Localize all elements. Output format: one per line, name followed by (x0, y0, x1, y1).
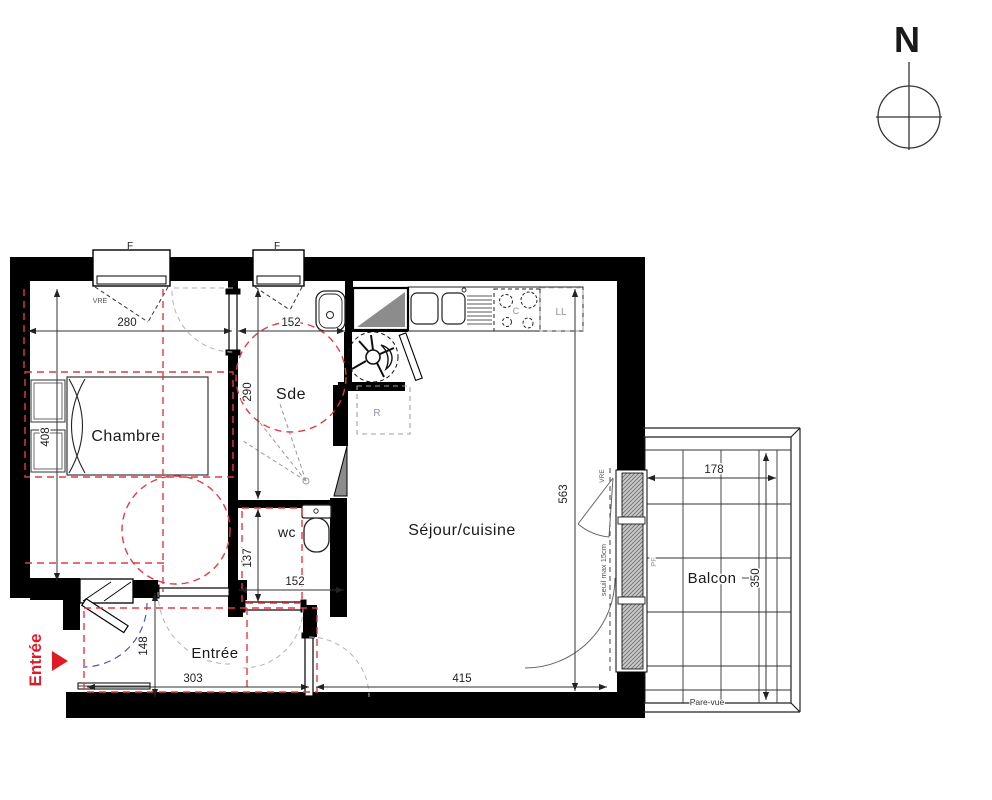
compass-north-label: N (894, 19, 920, 60)
north-compass (876, 62, 942, 150)
dim-wc-depth: 137 (242, 548, 254, 567)
washer-label: LL (555, 307, 567, 318)
bed (67, 377, 208, 475)
vre-top-label: VRE (93, 298, 108, 305)
balcony-french-window (610, 468, 647, 672)
dim-sejour-depth: 563 (558, 484, 570, 503)
entry-arrow-icon (52, 651, 68, 671)
room-label-entree: Entrée (191, 645, 238, 662)
drainer-lines (467, 296, 492, 324)
entry-marker (52, 651, 68, 671)
fridge-space (357, 386, 410, 434)
dim-sde-width: 152 (281, 317, 300, 329)
room-label-wc: wc (277, 524, 296, 540)
washbasin (316, 291, 345, 331)
duct-shaft (353, 288, 408, 330)
fridge-label: R (373, 408, 380, 419)
vre-window-label: VRE (599, 469, 606, 483)
nightstands (31, 380, 65, 472)
turning-circle-chambre (122, 476, 230, 584)
kitchen-sink-bowl-1 (411, 293, 438, 324)
cooktop-label: C (513, 306, 520, 316)
water-heater (348, 332, 398, 382)
turning-circle-sde (236, 322, 346, 432)
window2-label: F (274, 241, 280, 252)
bed-clearance (25, 372, 233, 477)
shower-drain-lines (243, 404, 309, 484)
faucet-icon (462, 288, 466, 292)
toilet (302, 505, 331, 552)
dim-wc-width: 152 (285, 576, 304, 588)
room-label-sejour: Séjour/cuisine (408, 522, 516, 539)
dim-entree-width: 303 (183, 673, 202, 685)
window-f2 (253, 250, 304, 310)
door-swings (83, 288, 369, 697)
floor-plan-drawing: N Entrée Chambre Sde wc Séjour/cuisine E… (0, 0, 992, 800)
dim-entree-depth: 148 (138, 636, 150, 655)
accessibility-overlays (24, 289, 346, 692)
kitchen-sink-bowl-2 (442, 293, 465, 324)
chambre-door-leaf (158, 588, 230, 596)
dim-sde-depth: 290 (242, 382, 254, 401)
entry-marker-label: Entrée (26, 634, 45, 687)
window-f1 (93, 250, 170, 322)
pare-vue-label: Pare-vue (690, 697, 725, 707)
pf-label: PF (649, 557, 658, 567)
dim-balcon-depth: 350 (750, 568, 762, 587)
room-label-sde: Sde (276, 386, 306, 403)
dim-chambre-depth: 408 (40, 427, 52, 446)
duct-triangle (334, 446, 347, 496)
dim-chambre-width: 280 (117, 317, 136, 329)
floor-plan: N Entrée Chambre Sde wc Séjour/cuisine E… (0, 0, 992, 800)
entry-door-leaf (82, 599, 128, 633)
room-label-balcon: Balcon (688, 570, 737, 587)
dim-sejour-width: 415 (452, 673, 471, 685)
room-label-chambre: Chambre (91, 428, 160, 445)
seuil-label: seuil max 15cm (599, 544, 608, 596)
dim-balcon-width: 178 (704, 464, 723, 476)
window1-label: F (127, 241, 133, 252)
nook-door-leaf (399, 333, 422, 380)
